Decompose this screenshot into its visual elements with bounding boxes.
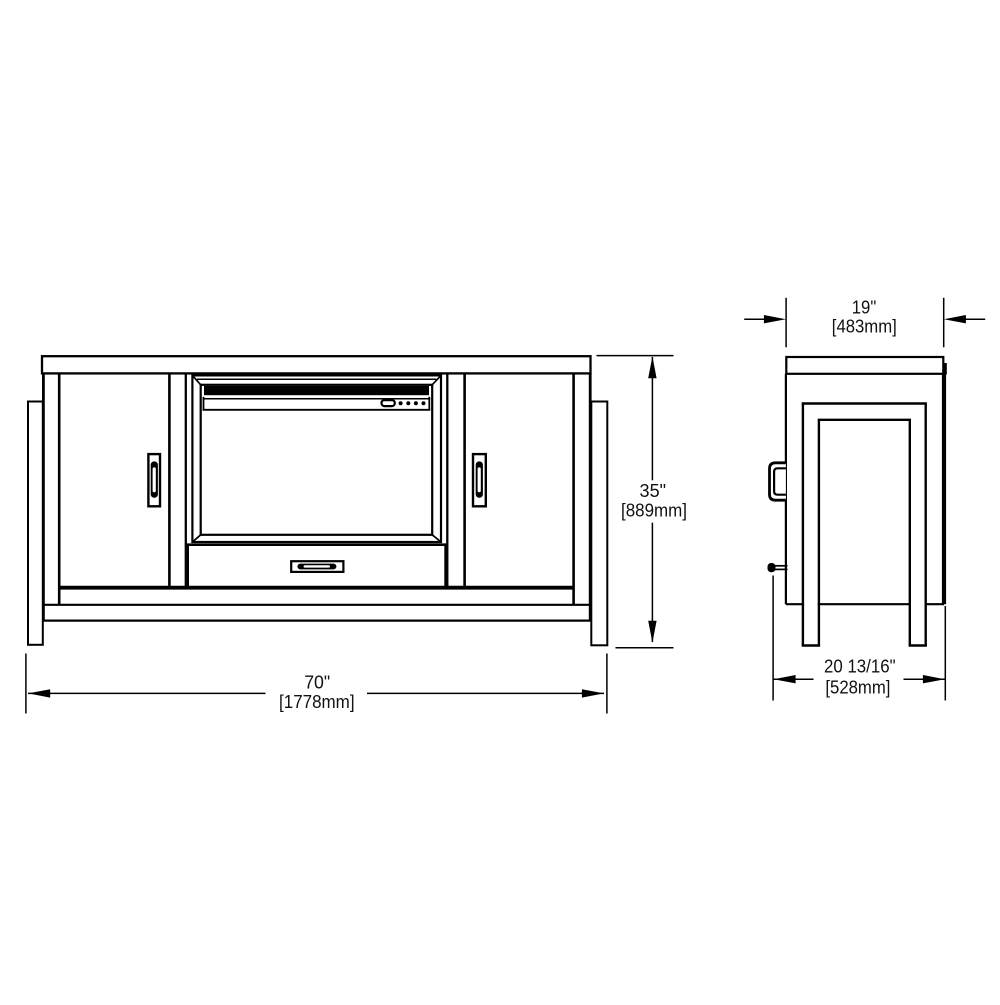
svg-text:70": 70" — [304, 671, 330, 692]
svg-text:20 13/16": 20 13/16" — [824, 656, 896, 677]
svg-text:19": 19" — [852, 296, 877, 317]
svg-text:[528mm]: [528mm] — [825, 677, 890, 698]
svg-text:[1778mm]: [1778mm] — [279, 691, 355, 712]
svg-text:[889mm]: [889mm] — [621, 500, 687, 521]
svg-text:[483mm]: [483mm] — [832, 316, 897, 337]
svg-text:35": 35" — [640, 480, 667, 501]
